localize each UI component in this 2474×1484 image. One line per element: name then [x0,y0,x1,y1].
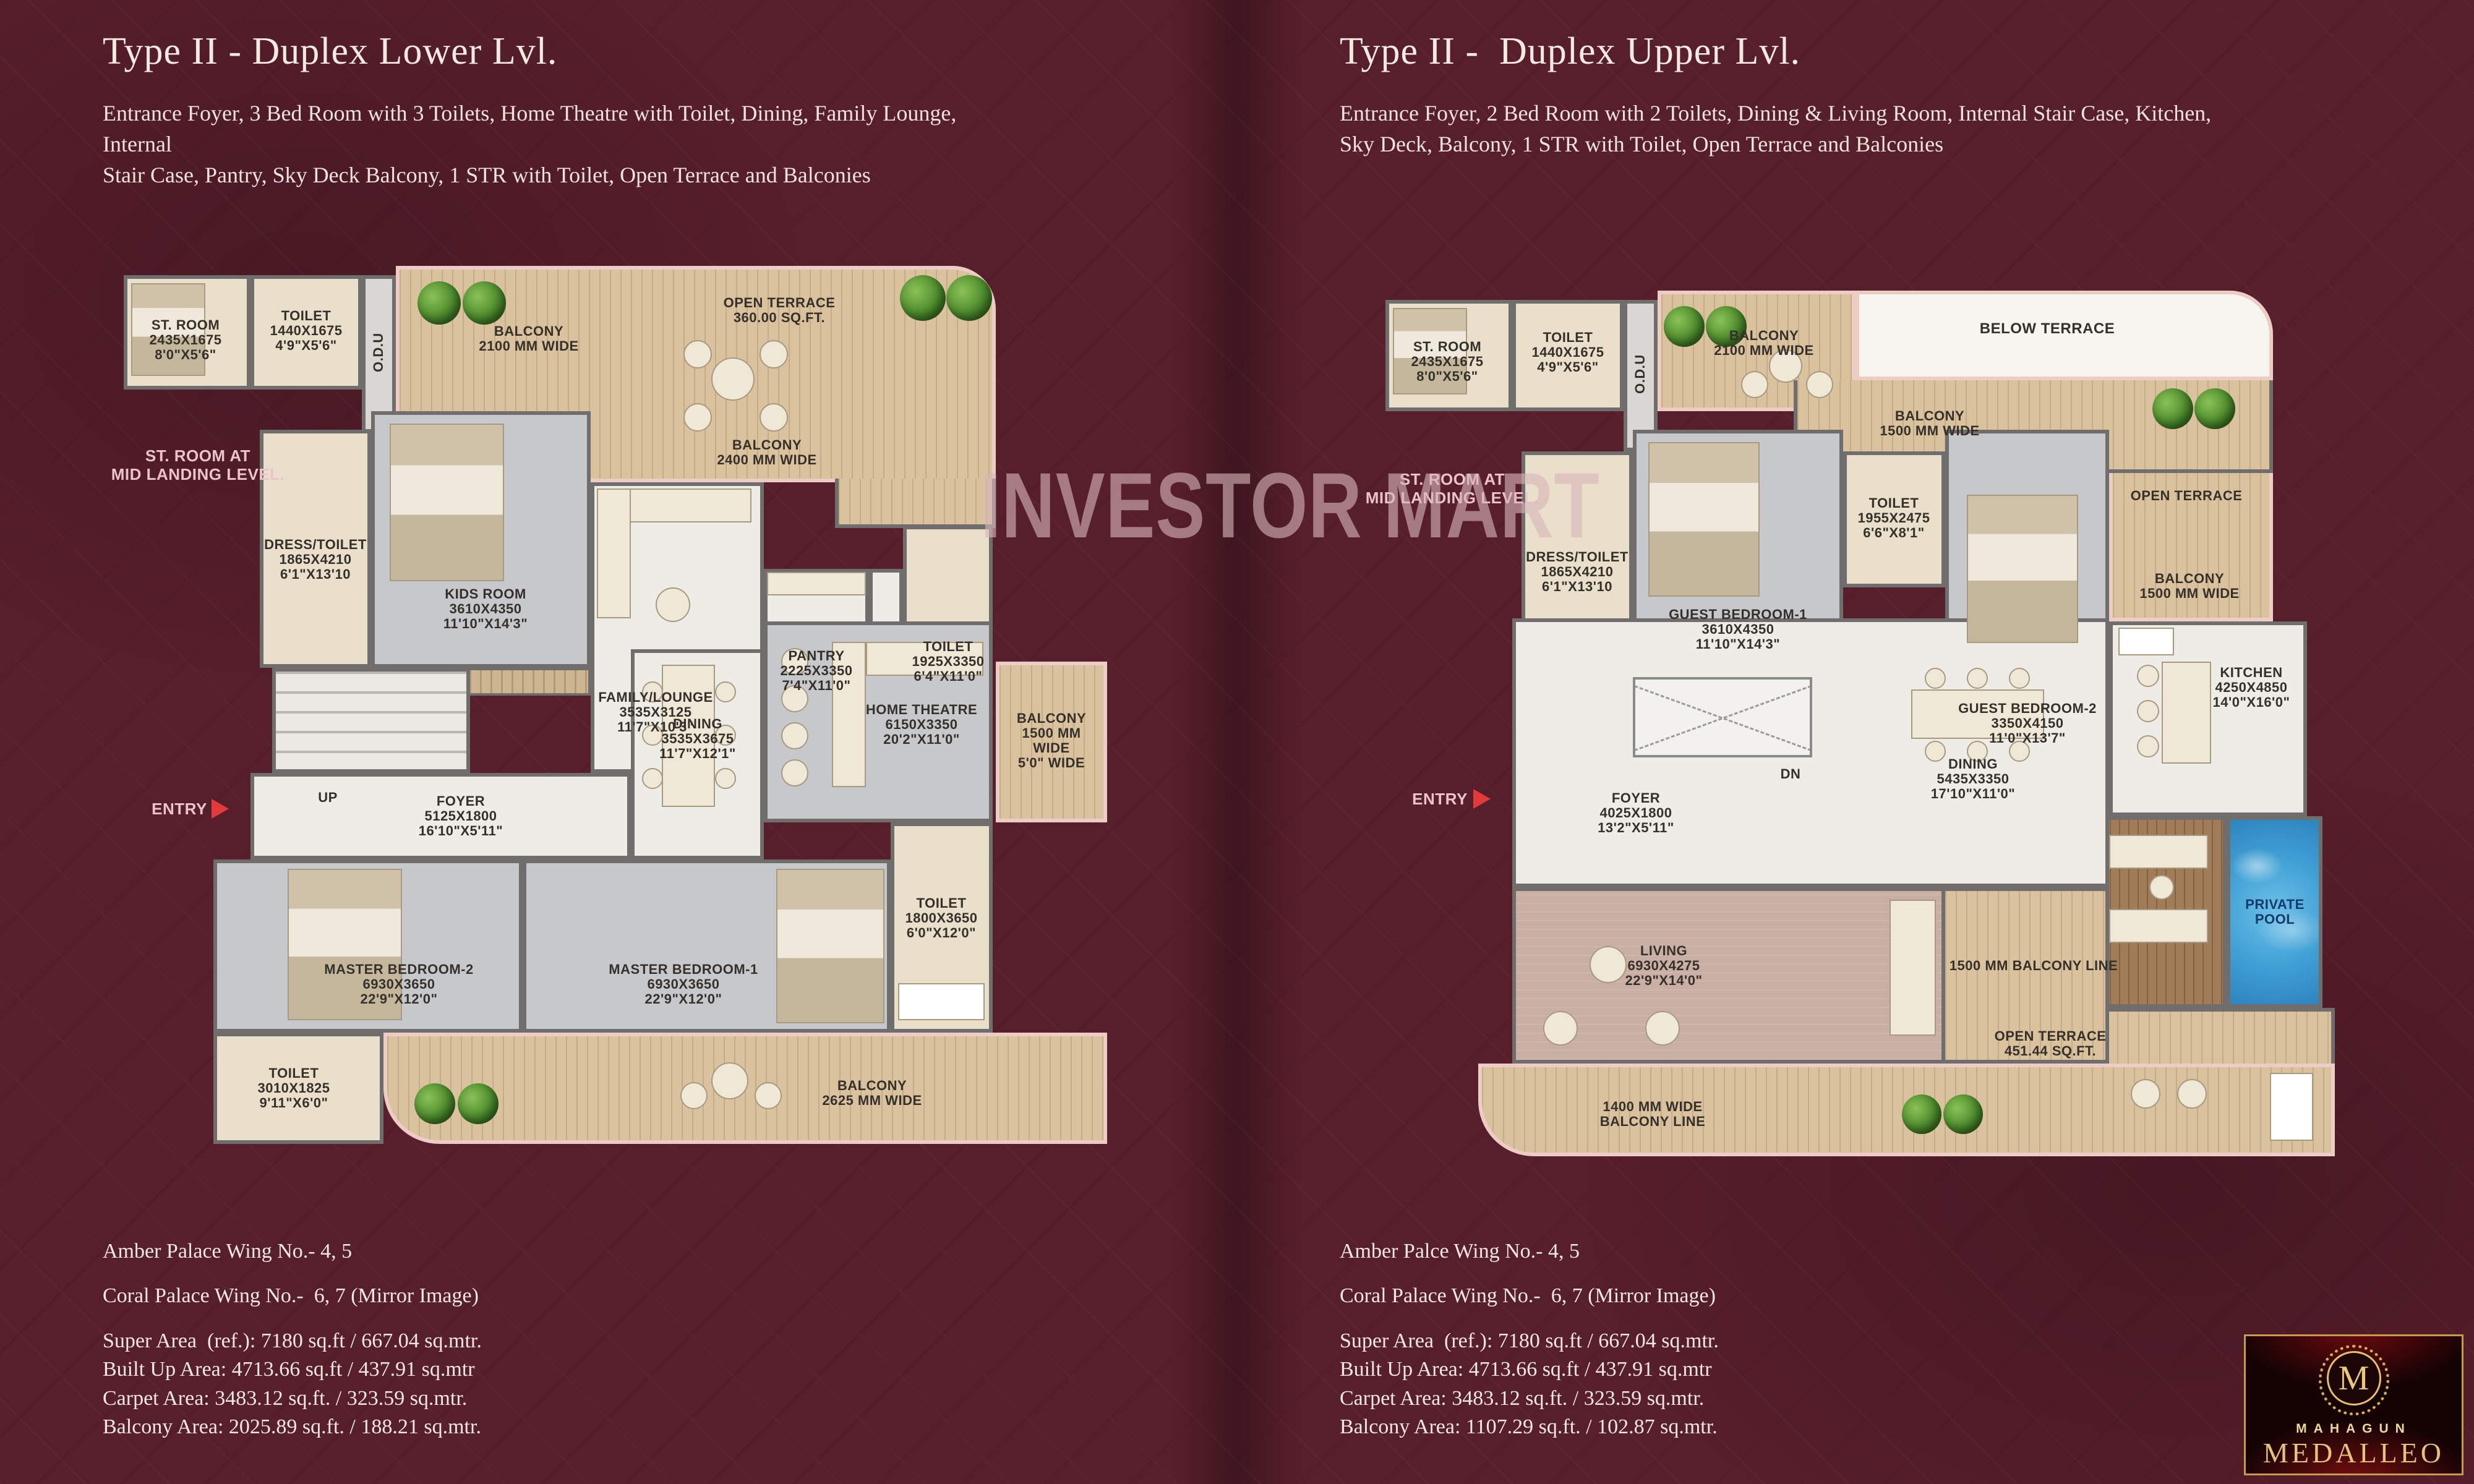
right-carpet-area: Carpet Area: 3483.12 sq.ft. / 323.59 sq.… [1340,1387,1704,1410]
terrace-chair [2131,1079,2160,1109]
label-balcony-1500: BALCONY 1500 MM WIDE 5'0" WIDE [1017,711,1086,770]
label-balcony-2100: BALCONY 2100 MM WIDE [1714,328,1813,358]
master1-bed [776,869,884,1023]
theatre-pouf [781,722,808,749]
entry-arrow-icon [1473,789,1491,809]
kitchen-stool [2137,665,2159,687]
kitchen-sink [2118,628,2174,655]
living-sofa [1890,900,1936,1036]
kitchen-stool [2137,700,2159,722]
terrace-chair [760,340,788,369]
pool-lounger [2109,909,2208,943]
logo-name-text: MEDALLEO [2246,1436,2462,1469]
label-dining: DINING 5435X3350 17'10"X11'0" [1931,757,2015,801]
left-balcony-area: Balcony Area: 2025.89 sq.ft. / 188.21 sq… [103,1415,481,1439]
label-guest-bedroom-2: GUEST BEDROOM-2 3350X4150 11'0"X13'7" [1958,701,2097,746]
tree-icon [900,275,946,321]
tree-icon [2152,388,2193,429]
label-st-room: ST. ROOM 2435X1675 8'0"X5'6" [149,318,221,362]
label-balcony-2100: BALCONY 2100 MM WIDE [479,324,578,354]
living-chair [1645,1011,1680,1046]
label-entry: ENTRY [1412,790,1468,808]
dining-chair [1967,668,1988,689]
label-dress-toilet: DRESS/TOILET 1865X4210 6'1"X13'10 [264,537,367,582]
left-super-area: Super Area (ref.): 7180 sq.ft / 667.04 s… [103,1329,482,1353]
label-open-terrace: OPEN TERRACE 360.00 SQ.FT. [724,296,836,325]
label-living: LIVING 6930X4275 22'9"X14'0" [1625,944,1703,988]
living-chair [1543,1011,1578,1046]
upper-living [1512,887,1945,1064]
label-kitchen: KITCHEN 4250X4850 14'0"X16'0" [2213,665,2290,710]
mahagun-medalleo-logo: M MAHAGUN MEDALLEO [2244,1334,2463,1475]
living-table [1590,946,1627,983]
gb1-bed [1648,442,1760,597]
label-balcony-1500-top: BALCONY 1500 MM WIDE [1880,409,1979,438]
kids-room-bed [390,424,504,581]
pool-lounger [2109,835,2208,869]
left-carpet-area: Carpet Area: 3483.12 sq.ft. / 323.59 sq.… [103,1387,467,1410]
right-super-area: Super Area (ref.): 7180 sq.ft / 667.04 s… [1340,1329,1719,1353]
right-balcony-area: Balcony Area: 1107.29 sq.ft. / 102.87 sq… [1340,1415,1718,1439]
dining-chair [2009,668,2030,689]
label-balcony-2625: BALCONY 2625 MM WIDE [822,1078,922,1108]
label-home-theatre: HOME THEATRE 6150X3350 20'2"X11'0" [866,702,977,747]
mb1-bathtub [898,983,985,1020]
label-odu: O.D.U [371,333,386,372]
lounge-table [656,587,690,622]
label-master-bedroom-1: MASTER BEDROOM-1 6930X3650 22'9"X12'0" [609,962,758,1007]
terrace-table [711,357,755,401]
label-open-terrace-right: OPEN TERRACE [2131,488,2243,503]
label-toilet-mb1: TOILET 1800X3650 6'0"X12'0" [905,896,977,940]
dining-chair [1925,668,1946,689]
left-page-title: Type II - Duplex Lower Lvl. [103,30,557,74]
balcony-chair [680,1082,708,1109]
terrace-chair [760,403,788,432]
left-wing-line-2: Coral Palace Wing No.- 6, 7 (Mirror Imag… [103,1284,479,1308]
label-toilet-mid: TOILET 1925X3350 6'4"X11'0" [912,639,984,684]
label-up: UP [318,790,338,805]
tree-icon [417,281,461,325]
monogram-icon: M [2327,1351,2381,1405]
left-page-description: Entrance Foyer, 3 Bed Room with 3 Toilet… [103,98,1018,190]
left-wing-line-1: Amber Palace Wing No.- 4, 5 [103,1240,352,1263]
tree-icon [1902,1094,1941,1134]
dining-chair [642,768,663,789]
label-balcony-2400: BALCONY 2400 MM WIDE [717,438,816,467]
lower-deck-right-extension [835,479,996,528]
balcony-chair [755,1082,782,1109]
label-dining: DINING 3535X3675 11'7"X12'1" [659,717,736,761]
label-balcony-1500-right: BALCONY 1500 MM WIDE [2139,571,2239,601]
terrace-chair [683,403,712,432]
investor-mart-watermark: INVESTOR MART [980,459,1600,552]
right-page-title: Type II - Duplex Upper Lvl. [1340,30,1800,74]
label-toilet-top: TOILET 1440X1675 4'9"X5'6" [270,309,342,353]
label-below-terrace: BELOW TERRACE [1980,322,2115,336]
label-toilet-mb2: TOILET 3010X1825 9'11"X6'0" [257,1066,330,1111]
tree-icon [946,275,992,321]
right-wing-line-1: Amber Palce Wing No.- 4, 5 [1340,1240,1580,1263]
tree-icon [2194,388,2235,429]
terrace-door [2270,1073,2313,1141]
label-st-room-mid: ST. ROOM AT MID LANDING LEVEL. [111,446,285,484]
label-balcony-line-1400: 1400 MM WIDE BALCONY LINE [1600,1099,1706,1129]
balcony-table [711,1062,748,1099]
label-pantry: PANTRY 2225X3350 7'4"X11'0" [780,649,852,693]
tree-icon [414,1083,455,1124]
label-toilet-top: TOILET 1440X1675 4'9"X5'6" [1531,330,1604,375]
tree-icon [1943,1094,1983,1134]
logo-brand-text: MAHAGUN [2246,1422,2462,1436]
label-kids-room: KIDS ROOM 3610X4350 11'10"X14'3" [443,587,528,631]
label-odu: O.D.U [1633,354,1648,394]
terrace-chair [1806,371,1833,398]
right-wing-line-2: Coral Palace Wing No.- 6, 7 (Mirror Imag… [1340,1284,1716,1308]
label-dn: DN [1781,767,1801,782]
terrace-chair [683,340,712,369]
gb2-bed [1967,495,2078,643]
label-st-room: ST. ROOM 2435X1675 8'0"X5'6" [1411,339,1483,384]
deck-table [2149,875,2174,900]
label-private-pool: PRIVATE POOL [2225,897,2325,927]
label-toilet-gb: TOILET 1955X2475 6'6"X8'1" [1857,496,1930,540]
label-guest-bedroom-1: GUEST BEDROOM-1 3610X4350 11'10"X14'3" [1669,607,1807,652]
lower-staircase [272,668,470,773]
lounge-sofa-b [597,488,631,618]
tree-icon [1664,306,1705,347]
terrace-chair [1741,371,1768,398]
dining-chair [715,681,736,702]
terrace-chair [2177,1079,2207,1109]
entry-arrow-icon [212,799,229,819]
upper-staircase [1633,677,1812,757]
label-entry: ENTRY [152,800,207,818]
kitchen-stool [2137,735,2159,757]
label-balcony-line-1500: 1500 MM BALCONY LINE [1950,958,2118,973]
lower-level-floor-plan: ST. ROOM 2435X1675 8'0"X5'6" TOILET 1440… [124,266,1113,1156]
pantry-counter [767,572,866,595]
tree-icon [463,281,506,325]
upper-level-floor-plan: ST. ROOM 2435X1675 8'0"X5'6" TOILET 1440… [1385,291,2375,1175]
dining-chair [715,768,736,789]
theatre-pouf [781,759,808,787]
label-open-terrace-bottom: OPEN TERRACE 451.44 SQ.FT. [1995,1029,2107,1059]
label-master-bedroom-2: MASTER BEDROOM-2 6930X3650 22'9"X12'0" [324,962,473,1007]
label-foyer: FOYER 5125X1800 16'10"X5'11" [419,794,503,838]
right-page-description: Entrance Foyer, 2 Bed Room with 2 Toilet… [1340,98,2243,160]
left-builtup-area: Built Up Area: 4713.66 sq.ft / 437.91 sq… [103,1358,475,1381]
tree-icon [458,1083,499,1124]
label-foyer: FOYER 4025X1800 13'2"X5'11" [1598,791,1674,835]
kitchen-island [2162,662,2211,764]
right-builtup-area: Built Up Area: 4713.66 sq.ft / 437.91 sq… [1340,1358,1712,1381]
